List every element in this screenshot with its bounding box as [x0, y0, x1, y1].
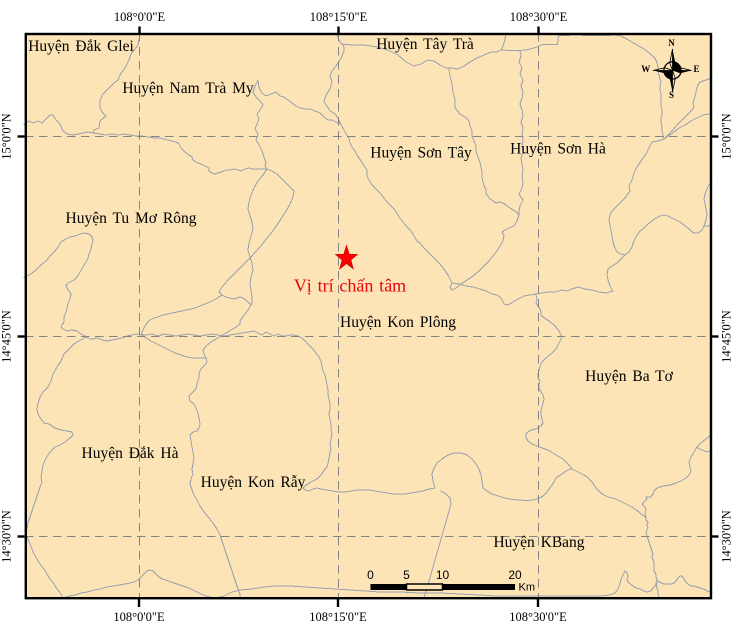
- svg-text:108°0'0"E: 108°0'0"E: [113, 610, 165, 624]
- svg-text:E: E: [693, 64, 699, 74]
- svg-text:14°45'0"N: 14°45'0"N: [0, 310, 14, 363]
- svg-text:Huyện KBang: Huyện KBang: [493, 534, 584, 551]
- svg-text:108°15'0"E: 108°15'0"E: [310, 10, 368, 24]
- svg-text:108°30'0"E: 108°30'0"E: [510, 10, 568, 24]
- svg-text:S: S: [669, 90, 674, 100]
- svg-text:Huyện Tu Mơ Rông: Huyện Tu Mơ Rông: [66, 210, 197, 227]
- svg-text:0: 0: [367, 568, 374, 582]
- svg-text:14°45'0"N: 14°45'0"N: [720, 310, 734, 363]
- svg-text:Huyện Sơn Hà: Huyện Sơn Hà: [510, 141, 606, 158]
- svg-text:Huyện Nam Trà My: Huyện Nam Trà My: [122, 80, 254, 97]
- svg-text:14°30'0"N: 14°30'0"N: [0, 510, 14, 563]
- svg-text:N: N: [668, 38, 675, 48]
- svg-text:14°30'0"N: 14°30'0"N: [720, 510, 734, 563]
- svg-text:Vị trí chấn tâm: Vị trí chấn tâm: [294, 276, 406, 296]
- svg-text:Huyện Tây Trà: Huyện Tây Trà: [376, 36, 474, 53]
- svg-text:108°30'0"E: 108°30'0"E: [509, 610, 567, 624]
- svg-text:10: 10: [436, 568, 450, 582]
- svg-text:Huyện Kon Plông: Huyện Kon Plông: [340, 314, 456, 331]
- svg-text:108°0'0"E: 108°0'0"E: [114, 10, 166, 24]
- svg-text:Huyện Kon Rẫy: Huyện Kon Rẫy: [201, 474, 306, 491]
- svg-text:15°0'0"N: 15°0'0"N: [0, 113, 14, 159]
- svg-text:5: 5: [403, 568, 410, 582]
- svg-text:20: 20: [508, 568, 522, 582]
- svg-text:Huyện Sơn Tây: Huyện Sơn Tây: [370, 145, 472, 162]
- svg-text:Huyện Ba Tơ: Huyện Ba Tơ: [585, 368, 673, 385]
- svg-text:W: W: [641, 64, 650, 74]
- svg-text:Huyện Đắk Glei: Huyện Đắk Glei: [28, 38, 134, 55]
- svg-text:108°15'0"E: 108°15'0"E: [309, 610, 367, 624]
- svg-text:15°0'0"N: 15°0'0"N: [720, 113, 734, 159]
- svg-text:Km: Km: [519, 582, 536, 594]
- svg-text:Huyện Đắk Hà: Huyện Đắk Hà: [82, 445, 179, 462]
